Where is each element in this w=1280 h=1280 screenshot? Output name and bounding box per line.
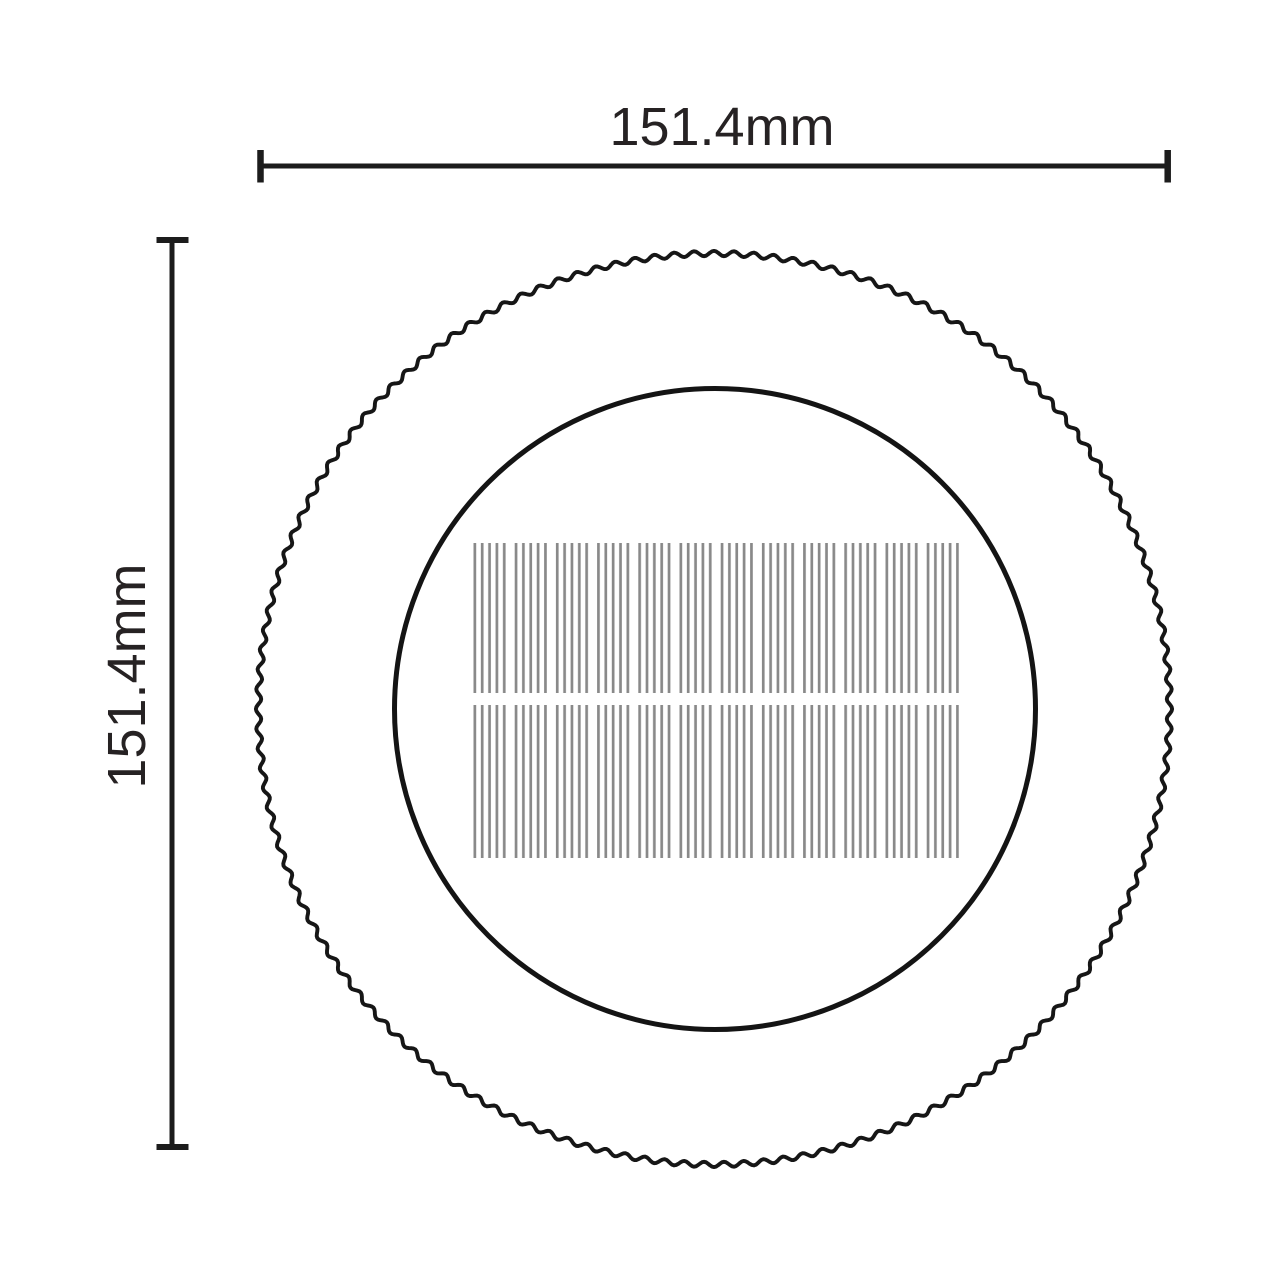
svg-text:151.4mm: 151.4mm <box>97 563 157 788</box>
svg-text:151.4mm: 151.4mm <box>609 97 834 157</box>
